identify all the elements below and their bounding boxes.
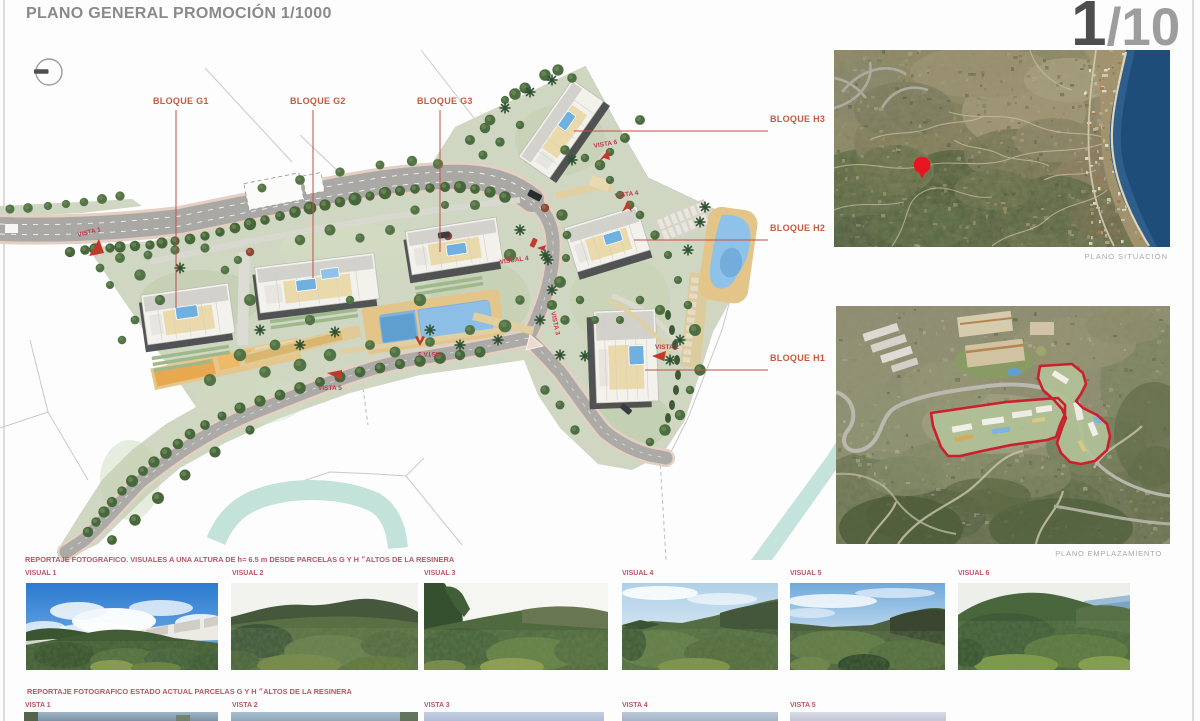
svg-text:BLOQUE H2: BLOQUE H2 bbox=[770, 223, 825, 233]
svg-text:VISTA 3: VISTA 3 bbox=[418, 350, 442, 357]
svg-text:VISTA 2: VISTA 2 bbox=[655, 344, 679, 351]
svg-text:BLOQUE H1: BLOQUE H1 bbox=[770, 353, 825, 363]
svg-text:BLOQUE H3: BLOQUE H3 bbox=[770, 114, 825, 124]
svg-text:BLOQUE G2: BLOQUE G2 bbox=[290, 96, 346, 106]
svg-text:BLOQUE G3: BLOQUE G3 bbox=[417, 96, 473, 106]
svg-text:VISTA 5: VISTA 5 bbox=[318, 385, 342, 392]
svg-text:BLOQUE G1: BLOQUE G1 bbox=[153, 96, 209, 106]
